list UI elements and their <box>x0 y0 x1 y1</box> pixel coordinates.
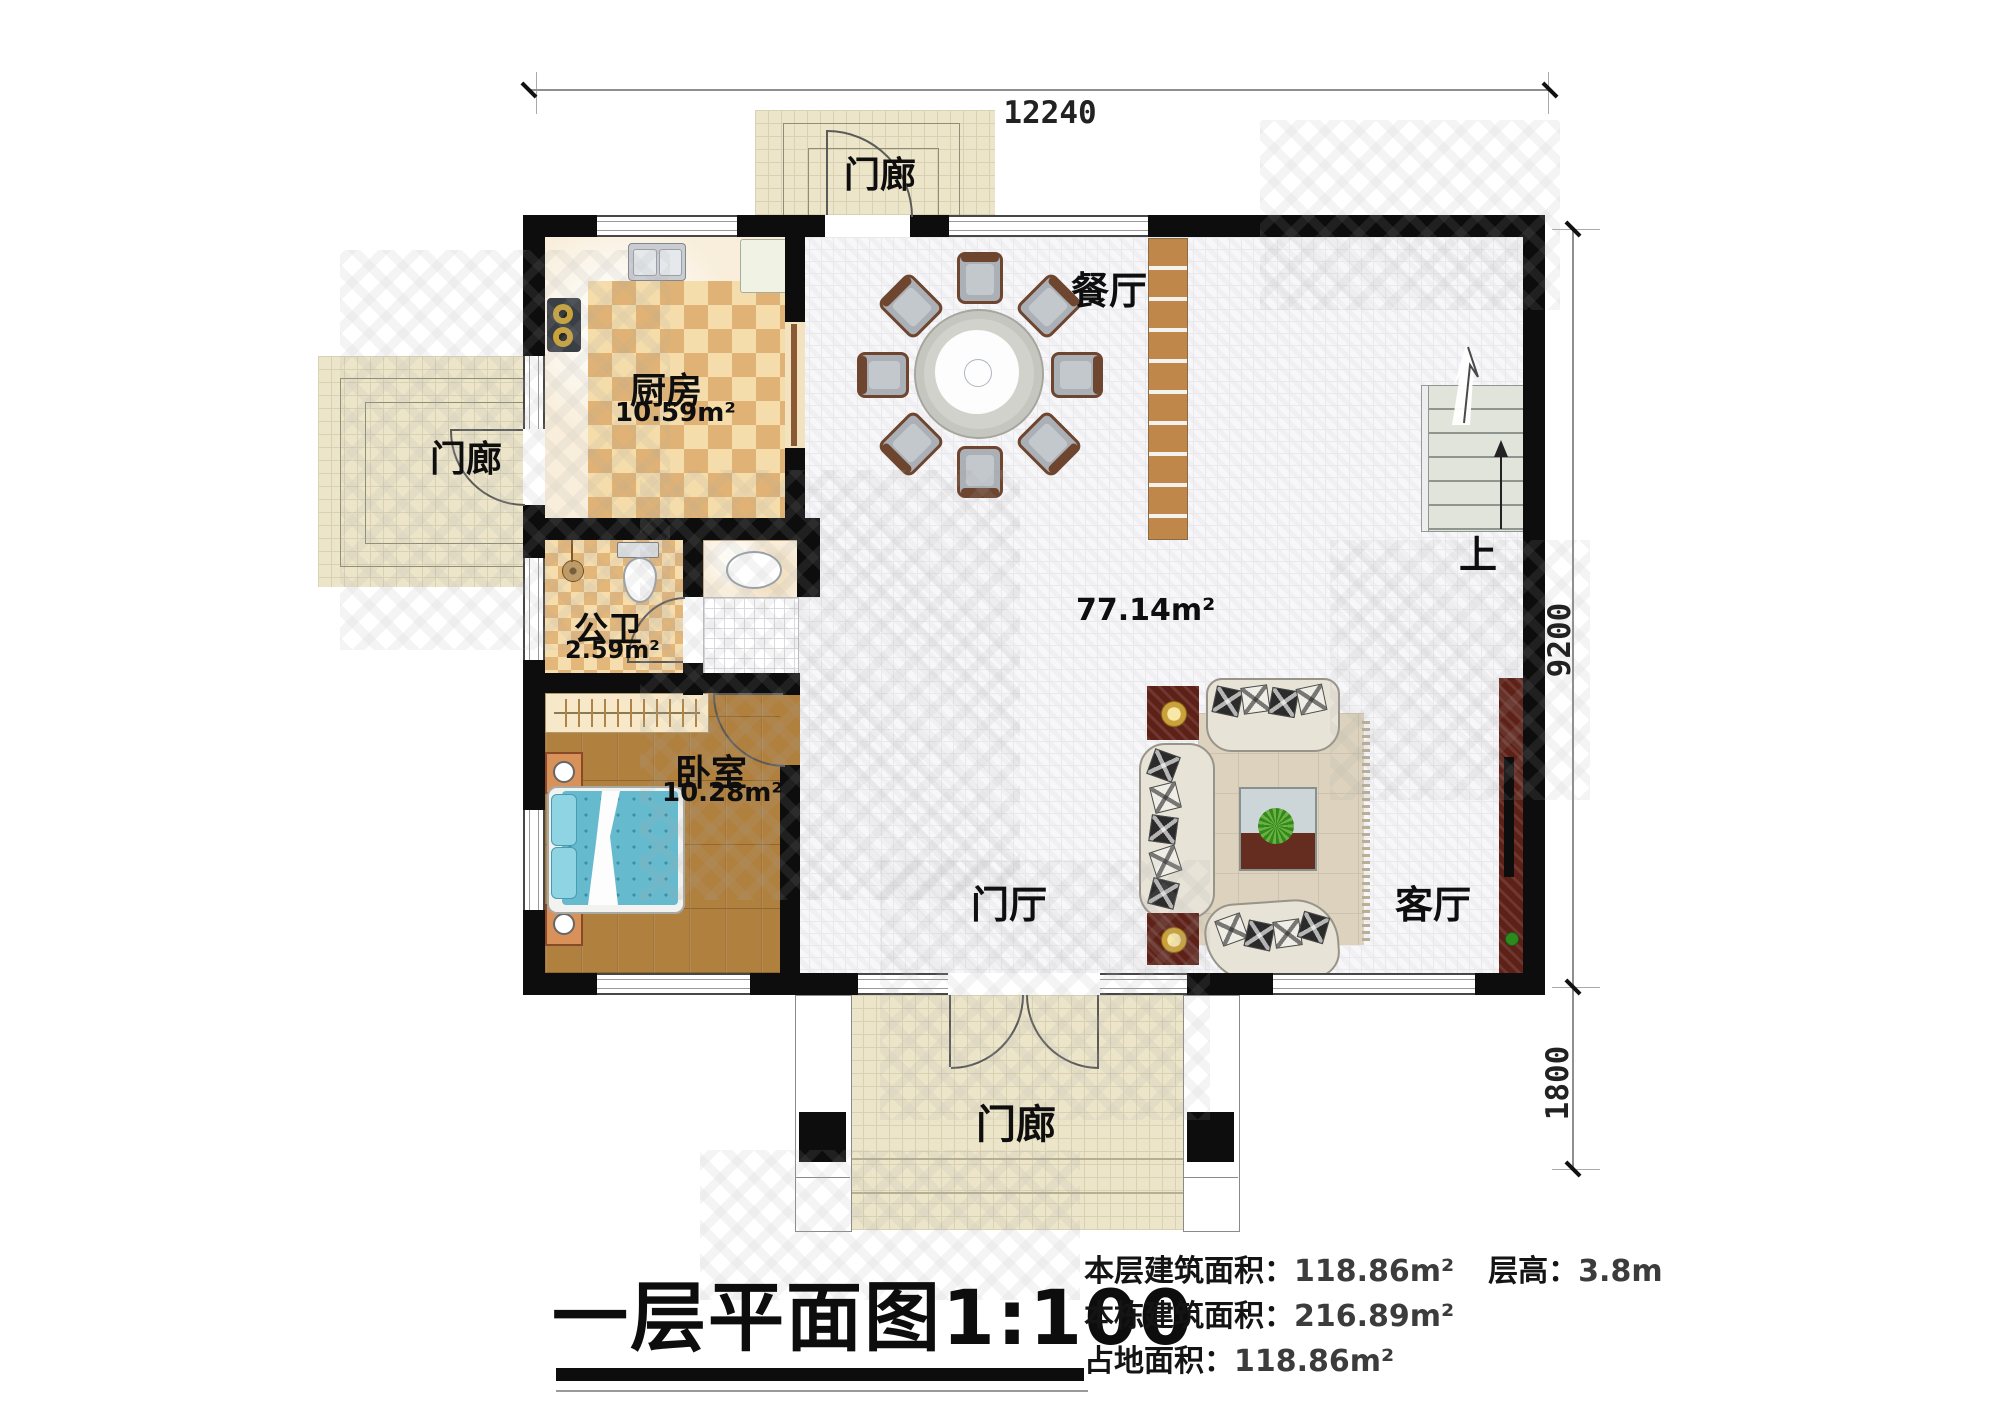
room-label-porch-bottom: 门廊 <box>968 1092 1064 1150</box>
sliding-door-kitchen <box>791 324 797 446</box>
dining-table-center <box>964 359 992 387</box>
wall-basin-stub <box>797 540 820 597</box>
toilet <box>617 542 659 558</box>
side-table <box>1147 686 1199 740</box>
burner <box>553 327 573 347</box>
window-kitchen-west <box>523 356 545 429</box>
room-label-porch-left: 门廊 <box>420 430 512 482</box>
pillow <box>551 794 577 846</box>
stairs-up-label: 上 <box>1456 524 1500 579</box>
sofa-pillow <box>1148 814 1178 844</box>
hall-area-label: 77.14m² <box>1076 593 1196 628</box>
stat-label: 本栋建筑面积： <box>1084 1299 1294 1334</box>
sink-basin <box>659 249 682 276</box>
dining-chair <box>957 252 1003 304</box>
stat-label: 本层建筑面积： <box>1084 1254 1294 1289</box>
stairs-up-arrow-head <box>1494 440 1508 457</box>
pillow <box>551 847 577 899</box>
living-rug-fringe <box>1362 717 1370 941</box>
wardrobe <box>545 693 709 733</box>
door-opening-bathroom <box>683 597 703 663</box>
porch-step-line <box>850 1158 1183 1160</box>
porch-column-right-base <box>1187 1112 1234 1162</box>
door-opening-top-porch <box>825 215 910 237</box>
door-opening-entry <box>948 973 1100 995</box>
stat-footprint-area: 占地面积：118.86m² <box>1084 1336 1428 1380</box>
dining-chair <box>857 352 909 398</box>
stat-floor-area: 本层建筑面积：118.86m²层高：3.8m <box>1084 1246 1697 1290</box>
burner <box>553 304 573 324</box>
sofa-pillow <box>1240 684 1270 714</box>
title-underline-thick <box>556 1368 1084 1381</box>
stove <box>547 298 581 352</box>
wall-bedroom-top <box>523 673 800 693</box>
table-lamp <box>553 761 575 783</box>
stairs-up-arrow-line <box>1500 455 1502 529</box>
window-dining-north <box>949 215 1148 237</box>
kitchen-sink <box>628 243 686 281</box>
tv-plant <box>1505 932 1519 946</box>
stat-label: 层高： <box>1488 1254 1578 1289</box>
floor-plan-canvas: 门廊 门廊 门廊 厨房 10.59m² 餐厅 公卫 2.59m² 卧室 10.2… <box>0 0 2000 1413</box>
dining-chair <box>1051 352 1103 398</box>
stat-value: 3.8m <box>1578 1254 1662 1289</box>
title-underline-thin <box>556 1390 1088 1392</box>
entry-mat <box>703 597 799 675</box>
window-living-south <box>1273 973 1475 995</box>
wardrobe-hangers <box>554 699 700 727</box>
dimension-extension <box>536 72 537 114</box>
window-bedroom-west <box>523 810 545 910</box>
tv <box>1504 757 1514 877</box>
room-label-hall: 门厅 <box>962 874 1056 929</box>
bed-quilt <box>562 791 678 905</box>
porch-column-divider <box>1183 1177 1238 1178</box>
stat-value: 216.89m² <box>1294 1299 1454 1334</box>
table-lamp <box>1161 927 1187 953</box>
porch-step-line <box>850 1192 1183 1194</box>
stat-value: 118.86m² <box>1234 1344 1394 1379</box>
dimension-extension <box>1548 72 1549 114</box>
stat-building-area: 本栋建筑面积：216.89m² <box>1084 1291 1488 1335</box>
sofa-pillow <box>1295 683 1327 715</box>
stat-value: 118.86m² <box>1294 1254 1454 1289</box>
shower-hose <box>571 538 573 562</box>
room-area-bathroom: 2.59m² <box>565 636 651 664</box>
dimension-porch-depth: 1800 <box>1541 1028 1575 1138</box>
table-lamp <box>1161 701 1187 727</box>
window-bedroom-south <box>597 973 750 995</box>
shower-head <box>562 560 584 582</box>
room-label-dining: 餐厅 <box>1062 260 1156 315</box>
window-kitchen-north <box>597 215 737 237</box>
window-hall-south-1 <box>858 973 948 995</box>
dimension-line-top <box>528 89 1550 91</box>
washbasin <box>726 551 782 589</box>
table-lamp <box>553 913 575 935</box>
dining-chair <box>957 446 1003 498</box>
room-label-living: 客厅 <box>1386 874 1480 929</box>
window-bathroom-west <box>523 558 545 660</box>
wall-kitchen-bottom <box>523 518 820 540</box>
door-opening-left-porch <box>523 429 545 505</box>
window-hall-south-2 <box>1100 973 1187 995</box>
coffee-table-plant <box>1258 808 1294 844</box>
sofa-pillow <box>1211 685 1243 717</box>
room-area-bedroom: 10.28m² <box>662 778 762 808</box>
stairs-break-line <box>1438 345 1508 425</box>
porch-column-left-base <box>799 1112 846 1162</box>
sofa-pillow <box>1243 919 1275 951</box>
room-label-porch-top: 门廊 <box>835 146 925 198</box>
sink-basin <box>633 249 657 276</box>
porch-column-divider <box>795 1177 850 1178</box>
side-table <box>1147 913 1199 965</box>
room-area-kitchen: 10.59m² <box>615 398 717 428</box>
sofa-pillow <box>1268 687 1299 718</box>
stat-label: 占地面积： <box>1084 1344 1234 1379</box>
dimension-top-width: 12240 <box>950 95 1150 131</box>
dimension-right-height: 9200 <box>1543 585 1577 695</box>
